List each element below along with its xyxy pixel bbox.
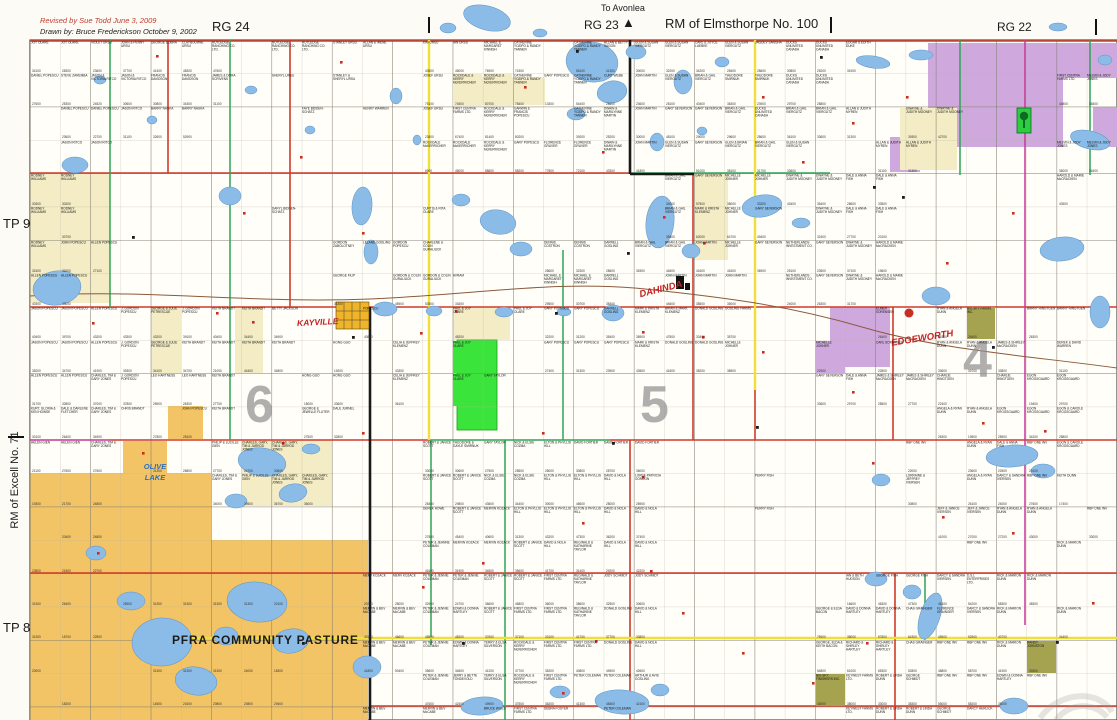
parcel: NETHERLANDS INVESTMENT CO.24000 — [786, 274, 815, 306]
parcel-owner: GLEN & SUSAN VIERGUTZ — [665, 74, 693, 81]
parcel: KEITH BRANDT40400 — [212, 307, 241, 339]
parcel: GARY SEVERSON33600 — [816, 374, 845, 406]
parcel-owner: MERVIN & BEV McCABE — [363, 641, 391, 648]
parcel: CHAS GRAINGER52800 — [906, 641, 935, 673]
parcel-value: 25300 — [62, 103, 71, 106]
parcel: RBP ONE INV23100 — [1027, 441, 1056, 473]
parcel-owner: DANIEL POPESCU — [61, 107, 89, 111]
parcel: DWAIN & MARILYNNE MARTIN25200 — [604, 107, 633, 139]
parcel-owner: GLEN & SUSAN VIERGUTZ — [635, 41, 663, 48]
parcel-value: 32500 — [606, 603, 615, 606]
parcel: BRIAN & GAIL VIERGUTZ35300 — [635, 241, 664, 273]
parcel-value: 31300 — [576, 369, 585, 372]
parcel: FIRST CENTRA FARMS LTD.67400 — [453, 107, 482, 139]
parcel-value: 22800 — [878, 369, 887, 372]
parcel-owner: CHARLES, TIM & GARY JONES — [91, 407, 119, 414]
park-tree-icon — [1017, 108, 1031, 133]
parcel-value: 41400 — [153, 69, 162, 72]
parcel-owner: DUCKS UNLIMITED CANADA — [755, 107, 783, 118]
parcel: CURTIS & RITA OLARE — [423, 207, 452, 239]
parcel: GEORGE & JULIE PETRESCUE34100 — [151, 341, 180, 373]
parcel-value: 20400 — [62, 536, 71, 539]
parcel-owner: JASON RITCO — [121, 107, 149, 111]
parcel-value: 41900 — [998, 669, 1007, 672]
parcel-owner: JAMES & SHIRLEY McCRACKEN — [997, 341, 1025, 348]
parcel: REGINALD & KATHARINE TAYLOR41700 — [574, 607, 603, 639]
parcel-owner: ROCKDALE & KERRY McKERRICHER — [514, 674, 542, 685]
parcel: ROBERT & JANICE SCOTT45400 — [453, 507, 482, 539]
parcel: ANGELA & RYAN DUNN26300 — [937, 407, 966, 439]
parcel-owner: J. GORDON POPESCU — [121, 307, 149, 314]
parcel-value: 41600 — [425, 569, 434, 572]
parcel-value: 74300 — [515, 69, 524, 72]
parcel-value: 28800 — [817, 103, 826, 106]
parcel-owner: EDGAR & EDITH DUKE — [846, 41, 874, 48]
parcel-owner: REGINALD & KATHARINE TAYLOR — [574, 607, 602, 618]
parcel-owner: DAVID & NOLA HILL — [604, 474, 632, 481]
parcel: ELTON & PHYLLIS HILL45600 — [574, 474, 603, 506]
parcel: ARTHUR & AVIS GOSLING42100 — [635, 674, 664, 706]
parcel-owner: DENNIS COSTRON — [544, 241, 572, 248]
parcel-value: 32800 — [62, 403, 71, 406]
parcel: 24800 — [91, 507, 120, 539]
parcel-value: 38500 — [696, 303, 705, 306]
parcel-owner: ALLAN & BETTY SAGON — [604, 41, 632, 48]
parcel: DONALD GOSLING49900 — [604, 641, 633, 673]
parcel-owner: GEORGE FILIP — [333, 274, 361, 278]
parcel: JAMES & DORA SCRIVENS31100 — [212, 74, 241, 106]
parcel-owner: JOHN MARTIN — [635, 107, 663, 111]
parcel: PAUL & JOY OLARE — [514, 307, 543, 339]
parcel: FIRST CENTRA FARMS LTD.36200 — [544, 674, 573, 706]
parcel: GEORGE FISH47300 — [906, 574, 935, 606]
parcel-value: 74500 — [455, 103, 464, 106]
parcel: GORDON & COLIN GURALIUCK45900 — [393, 274, 422, 306]
parcel-value: 51000 — [696, 169, 705, 172]
parcel: ALLAN & IRENE URSU — [363, 41, 392, 73]
parcel: GLEN & SUSAN VIERGUTZ28100 — [665, 74, 694, 106]
parcel-value: 31300 — [183, 669, 192, 672]
parcel: CHARLIE HINGTGEN22400 — [937, 374, 966, 406]
parcel-owner: BARRY NASKA — [182, 107, 210, 111]
parcel-value: 38600 — [576, 603, 585, 606]
parcel-value: 29500 — [545, 303, 554, 306]
parcel-value: 44400 — [244, 369, 253, 372]
parcel: PHILIP & LUCILLE GIEN39500 — [242, 474, 271, 506]
parcel: RBP ONE INV — [1027, 674, 1056, 706]
parcel: 31300 — [212, 574, 241, 606]
parcel-owner: JAMES & DORA SCRIVENS — [212, 74, 240, 81]
parcel-value: 41300 — [606, 69, 615, 72]
parcel: DAVID & NOLA HILL42200 — [635, 541, 664, 573]
parcel-owner: TERRY & ELSA SILVERSON — [484, 674, 512, 681]
parcel: IAN URSU45000 — [453, 41, 482, 73]
parcel: DAVID & NOLA HILL29200 — [604, 541, 633, 573]
parcel-owner: ANGELA & RYAN DUNN — [967, 441, 995, 448]
parcel: PETER COLEMAN — [604, 707, 633, 720]
parcel-owner: HONG GUO — [333, 341, 361, 345]
parcel-owner: CATHERINE YOZIPO & RANDY TANNER — [574, 74, 602, 85]
parcel-owner: THEODORE SMIRNUK — [725, 74, 753, 81]
parcel: ROCKDALE & KERRY McKERRICHER37700 — [514, 641, 543, 673]
parcel-owner: ARTHUR & AVIS GOSLING — [635, 674, 663, 681]
range-divider-tick — [1095, 19, 1097, 35]
parcel-value: 56100 — [576, 69, 585, 72]
parcel: GORDON & COLIN GURALIUCK53500 — [423, 274, 452, 306]
parcel: ROCKDALE & KERRY McKERRICHER81400 — [484, 107, 513, 139]
parcel: DALE & ANNA FISH28600 — [846, 174, 875, 206]
parcel-owner: KEYWEST FARMS LTD. — [846, 707, 874, 714]
parcel-owner: ALLAN & JUDITH MYREN — [906, 141, 934, 148]
parcel: J. GORDON POPESCU39300 — [121, 341, 150, 373]
parcel-value: 40800 — [364, 336, 373, 339]
parcel-owner: ROCKDALE & KERRY McKERRICHER — [484, 107, 512, 118]
parcel-owner: MELVIN & JODY JONES — [1057, 141, 1085, 148]
parcel-owner: BARRY HINGTGEN — [1057, 307, 1085, 311]
parcel-value: 32900 — [425, 603, 434, 606]
parcel-value: 42400 — [455, 703, 464, 706]
parcel-owner: KEITH BRANDT — [272, 341, 300, 345]
parcel-value: 28100 — [183, 436, 192, 439]
north-arrow-icon: ▲ — [622, 15, 635, 30]
parcel: DARRELL GOSLING35400 — [604, 307, 633, 339]
parcel-value: 31300 — [213, 603, 222, 606]
parcel-owner: DUCKS UNLIMITED CANADA — [786, 41, 814, 52]
parcel-owner: ELTON & PHYLLIS HILL — [544, 441, 572, 448]
parcel-owner: DAVID & NOLA HILL — [635, 607, 663, 614]
parcel: DAVID & DONNA HARTLEY38000 — [846, 607, 875, 639]
parcel: BETTY JACKSON34900 — [272, 307, 301, 339]
parcel-owner: CHAS GRAINGER — [906, 641, 934, 645]
parcel-owner: CATHERINE YOZIPO & RANDY TANNER — [514, 74, 542, 85]
parcel-value: 34300 — [183, 103, 192, 106]
parcel: GARY POPESCU58200 — [514, 141, 543, 173]
parcel: MICHAEL & MARGARET KINNISH76900 — [484, 41, 513, 73]
parcel-value: 48400 — [606, 703, 615, 706]
parcel: EGON KROGSGAARD28900 — [997, 407, 1026, 439]
parcel-value: 24000 — [998, 503, 1007, 506]
parcel-owner: RBP ONE INV — [967, 641, 995, 645]
parcel: 31300 — [182, 641, 211, 673]
parcel-owner: FIRST CENTRA FARMS LTD. — [574, 641, 602, 648]
parcel: JASON & VICTORIA RITCO30600 — [121, 74, 150, 106]
parcel-value: 33600 — [787, 169, 796, 172]
parcel-value: 28900 — [998, 436, 1007, 439]
parcel-value: 23900 — [757, 103, 766, 106]
parcel-value: 33400 — [696, 336, 705, 339]
parcel-owner: BIG SKY FARMS INC. — [967, 307, 995, 314]
parcel-owner: PAUL & JOY OLARE — [453, 374, 481, 381]
parcel-value: 40300 — [364, 636, 373, 639]
parcel: JEFF & JANICE IVERSEN27000 — [967, 507, 996, 539]
parcel-owner: JOHN POPESCU — [182, 407, 210, 411]
parcel-owner: DALE & ANNA FISH — [846, 207, 874, 214]
parcel-value: 21000 — [213, 369, 222, 372]
parcel-value: 45000 — [455, 169, 464, 172]
parcel: KEITH BRANDT21000 — [212, 341, 241, 373]
parcel-owner: DARRELL GOSLING — [604, 307, 632, 314]
parcel-owner: CATHERINE YOZIPO & RANDY TANNER — [574, 107, 602, 118]
parcel: MARK & KRISTA KLEMENZ38900 — [635, 307, 664, 339]
parcel: ELTON & PHYLLIS HILL31300 — [514, 507, 543, 539]
parcel-value: 36900 — [757, 269, 766, 272]
parcel-value: 31300 — [153, 603, 162, 606]
parcel: BARRY NASKA52900 — [182, 107, 211, 139]
parcel-value: 28000 — [395, 603, 404, 606]
parcel-owner: JASON POPESCU — [61, 307, 89, 311]
parcel-owner: ROBERT & JANICE SCOTT — [453, 474, 481, 481]
parcel-owner: BARRY HINGTGEN — [1027, 307, 1055, 311]
parcel-value: 31100 — [213, 103, 222, 106]
parcel-owner: J. GORDON POPESCU — [121, 374, 149, 381]
parcel-value: 35600 — [515, 569, 524, 572]
parcel-value: 35200 — [545, 669, 554, 672]
parcel-owner: PAUL & JOY OLARE — [453, 307, 481, 314]
parcel: NICK & ELSIE COZMA28500 — [514, 441, 543, 473]
parcel-value: 24700 — [244, 469, 253, 472]
parcel-owner: DEREK HOWE — [423, 507, 451, 511]
parcel-owner: MARK & KRISTA KLEMENZ — [695, 207, 723, 214]
parcel: DEREK HOWE27800 — [423, 507, 452, 539]
parcel-value: 30000 — [636, 69, 645, 72]
parcel-value: 34800 — [274, 369, 283, 372]
parcel-value: 28300 — [62, 69, 71, 72]
parcel-value: 41700 — [576, 636, 585, 639]
parcel-value: 38900 — [727, 369, 736, 372]
parcel-owner: GEORGE FISH — [906, 574, 934, 578]
parcel-value: 29400 — [274, 703, 283, 706]
parcel-owner: GARWIN & FRANCIS POPESCU — [514, 107, 542, 118]
township-9-label: TP 9 — [3, 216, 30, 231]
parcel: GLEN & SUSAN VIERGUTZ32200 — [665, 41, 694, 73]
parcel: GARY SEVERSON57500 — [695, 174, 724, 206]
parcel-value: 52900 — [183, 136, 192, 139]
parcel: RUTLEDGE RANCHING CO. LTD.47600 — [212, 41, 241, 73]
parcel-owner: CATHERINE YOZIPO & RANDY TANNER — [574, 41, 602, 52]
parcel: PERRY FISH — [755, 474, 784, 506]
parcel-value: 33400 — [455, 303, 464, 306]
parcel-value: 36600 — [485, 603, 494, 606]
parcel-owner: KEITH BRANDT — [212, 341, 240, 345]
parcel-value: 36200 — [545, 703, 554, 706]
parcel: CHRIS BRANDT — [121, 407, 150, 439]
parcel-owner: GEORGE & ELDA BACON — [816, 607, 844, 614]
parcel-owner: PETER COLEMAN — [604, 707, 632, 711]
parcel-value: 33500 — [878, 203, 887, 206]
parcel-owner: PETER & JENNIE COLEMAN — [423, 641, 451, 648]
parcel-owner: LORRAINE & JEFFREY IVERSEN — [906, 474, 934, 485]
parcel-value: 28700 — [606, 469, 615, 472]
parcel-owner: JAMES & SHIRLEY McCRACKEN — [906, 374, 934, 381]
parcel-value: 35500 — [666, 236, 675, 239]
parcel: DWAYNE & JUDITH MOONEY43400 — [786, 174, 815, 206]
parcel: 20800 — [242, 674, 271, 706]
parcel-value: 13300 — [545, 103, 554, 106]
parcel: 31300 — [151, 574, 180, 606]
parcel-owner: DARCY & SANDRA IVERSEN — [997, 474, 1025, 481]
parcel: EDWIN & DONNA HARTLEY34600 — [453, 641, 482, 673]
parcel-value: 39700 — [62, 336, 71, 339]
parcel-owner: RICK & MARION DUNN — [997, 641, 1025, 648]
parcel-value: 34000 — [666, 203, 675, 206]
parcel: RICK & MARION DUNN58300 — [997, 574, 1026, 606]
parcel-owner: MERVIN KOZACK — [484, 507, 512, 511]
parcel-owner: ALLEN POPESCU — [31, 374, 59, 378]
parcel-value: 23100 — [1029, 469, 1038, 472]
parcel: HAROLD & MARIE McCRACKEN19600 — [876, 241, 905, 273]
parcel-owner: GARY POPESCU — [574, 341, 602, 345]
parcel-value: 58600 — [485, 169, 494, 172]
parcel: PETER & JENNIE COLEMAN24700 — [453, 574, 482, 606]
parcel-value: 33000 — [878, 703, 887, 706]
parcel-owner: JOHN MARTIN — [725, 274, 753, 278]
parcel-value: 32800 — [334, 436, 343, 439]
parcel-value: 40400 — [696, 103, 705, 106]
parcel-value: 47300 — [576, 536, 585, 539]
parcel-owner: ROBERT & JANICE SCOTT — [423, 441, 451, 448]
parcel: PHILIP & LUCILLE GIEN27700 — [212, 441, 241, 473]
parcel: KEYWEST FARMS LTD.38000 — [846, 674, 875, 706]
parcel: MERVIN & BEV McCABE — [363, 707, 392, 720]
parcel: GLEN & SUSAN VIERGUTZ30000 — [635, 41, 664, 73]
parcel-value: 35400 — [606, 336, 615, 339]
parcel: MICHELLE JOHNER22900 — [816, 341, 845, 373]
parcel-value: 28600 — [757, 136, 766, 139]
parcel: JASON RITCO — [61, 141, 90, 173]
parcel-value: 33600 — [938, 369, 947, 372]
parcel: ROBERT & LINDA DUNN33000 — [876, 674, 905, 706]
parcel-owner: PHILIP & LUCILLE GIEN — [212, 441, 240, 448]
parcel: JOHN MARTIN38500 — [695, 274, 724, 306]
parcel-owner: JOY OLARE — [31, 41, 59, 45]
parcel: RICK & MARION DUNN41900 — [997, 641, 1026, 673]
parcel-owner: GARY SEVERSON — [816, 241, 844, 245]
parcel-owner: DAVID & NOLA HILL — [635, 507, 663, 514]
parcel-owner: MERVIN & BEV McCABE — [363, 707, 391, 714]
parcel: JOHN MARTIN41600 — [695, 241, 724, 273]
to-avonlea-label: To Avonlea — [601, 3, 645, 13]
parcel-owner: MERVIN & BEV McCABE — [363, 607, 391, 614]
parcel-owner: JOHN POPESCU — [61, 241, 89, 245]
parcel-value: 43200 — [153, 336, 162, 339]
parcel-value: 80700 — [485, 103, 494, 106]
parcel-owner: GARY SEVERSON — [816, 274, 844, 278]
parcel-owner: DARYL BIDDEN-SCHATZ — [272, 207, 300, 214]
parcel: RBP ONE INV — [967, 541, 996, 573]
parcel-owner: BIG SKY FINISHERS INC. — [816, 674, 844, 681]
parcel: ALLAN & BETTY SAGON41300 — [604, 41, 633, 73]
parcel: FLORENCE GRUVER72100 — [574, 141, 603, 173]
parcel: ALLEN POPESCU43000 — [61, 274, 90, 306]
parcel-value: 41600 — [666, 369, 675, 372]
parcel: 20100 — [272, 574, 301, 606]
parcel-value: 31300 — [847, 136, 856, 139]
range-divider-tick — [428, 17, 430, 33]
parcel-value: 35600 — [425, 669, 434, 672]
parcel: BRIAN & MARK KLEMENZ47800 — [665, 307, 694, 339]
parcel-owner: JOHN MARTIN — [635, 74, 663, 78]
parcel: RYAN & ANGELA DUNN19500 — [967, 407, 996, 439]
parcel-owner: MICHAEL & MARGARET KINNISH — [484, 41, 512, 52]
parcel-value: 18700 — [62, 636, 71, 639]
parcel-value: 33800 — [636, 636, 645, 639]
parcel-owner: FLORENCE GRUVER — [574, 141, 602, 148]
parcel-value: 30600 — [636, 603, 645, 606]
parcel-value: 22900 — [817, 369, 826, 372]
parcel-owner: STANLEY URSU — [333, 41, 361, 45]
parcel: RODNEY WILLIAMS30300 — [31, 174, 60, 206]
parcel-owner: FIRST CENTRA FARMS LTD. — [514, 607, 542, 614]
parcel-owner: ALLAN & JUDITH MYREN — [876, 141, 904, 148]
parcel: AVRAM33400 — [453, 274, 482, 306]
parcel: PAUL & JOY OLARE — [453, 374, 482, 406]
parcel-owner: FAYE BIDDEN-SCHATZ — [302, 107, 330, 114]
parcel: GARY SEVERSON26300 — [816, 274, 845, 306]
parcel-owner: GLEN & BRIAN VIERGUTZ — [725, 141, 753, 148]
parcel-value: 31300 — [515, 536, 524, 539]
parcel-owner: GARY SEVERSON — [665, 107, 693, 111]
parcel: EDWIN & DONNA HARTLEY38000 — [997, 674, 1026, 706]
section-numeral-6: 6 — [245, 375, 274, 435]
parcel: GARY POPESCU31300 — [574, 341, 603, 373]
parcel-value: 64700 — [727, 236, 736, 239]
parcel-value: 23900 — [606, 369, 615, 372]
parcel-owner: ELTON & PHYLLIS HILL — [574, 474, 602, 481]
parcel-owner: ALLAN & IRENE URSU — [363, 41, 391, 48]
parcel: MERVIN & BEV McCABE — [423, 707, 452, 720]
parcel-owner: KEITH DUNN — [1057, 474, 1085, 478]
parcel-owner: DANIEL POPESCU — [31, 74, 59, 78]
parcel-owner: BRIAN & GAIL VIERGUTZ — [755, 141, 783, 148]
parcel-owner: JODY SCHMIDT — [604, 574, 632, 578]
parcel-value: 37700 — [123, 69, 132, 72]
parcel: JOHN POPESCU28100 — [182, 407, 211, 439]
parcel: KEITH BRANDT34400 — [242, 307, 271, 339]
parcel-owner: VIOLET URSU — [91, 41, 119, 45]
parcel-value: 35000 — [727, 303, 736, 306]
parcel: ROCKDALE McKERRICHER6900 — [423, 141, 452, 173]
parcel: JOHN MARTIN41800 — [635, 141, 664, 173]
parcel-owner: ROCKDALE & KERRY McKERRICHER — [484, 74, 512, 85]
parcel-owner: PAUL & JOY OLARE — [453, 341, 481, 348]
parcel-owner: BRIAN & GAIL VIERGUTZ — [695, 74, 723, 81]
parcel-value: 36700 — [274, 503, 283, 506]
parcel-value: 28600 — [757, 69, 766, 72]
parcel-value: 27000 — [968, 536, 977, 539]
parcel-value: 31900 — [455, 569, 464, 572]
parcel: DALE & ANNA FISH29700 — [846, 374, 875, 406]
parcel-owner: ROBERT & JANICE SCOTT — [484, 574, 512, 581]
parcel-value: 19400 — [1029, 403, 1038, 406]
parcel-value: 38200 — [696, 369, 705, 372]
red-marker-dot — [905, 309, 914, 318]
parcel: CATHERINE YOZIPO & RANDY TANNER56100 — [574, 41, 603, 73]
parcel-value: 31700 — [847, 303, 856, 306]
parcel: DWAYNE & JUDITH MOONEY39300 — [906, 107, 935, 139]
parcel: JAGDEV SANGHA28600 — [755, 41, 784, 73]
parcel: DENNIS COSTRON28600 — [544, 241, 573, 273]
parcel-owner: BRIAN & GAIL VIERGUTZ — [665, 241, 693, 248]
parcel-value: 28500 — [878, 403, 887, 406]
parcel-owner: MERVIN & BEV McCABE — [423, 707, 451, 714]
parcel-value: 28900 — [153, 403, 162, 406]
parcel-value: 43000 — [62, 303, 71, 306]
parcel-value: 34600 — [455, 669, 464, 672]
parcel-owner: EGON & CAROLE KROGSGAARD — [1057, 441, 1085, 448]
parcel-owner: NICK & ELSIE COZMA — [514, 441, 542, 448]
parcel: GARY TAYLOR27500 — [484, 441, 513, 473]
parcel-value: 26300 — [817, 303, 826, 306]
